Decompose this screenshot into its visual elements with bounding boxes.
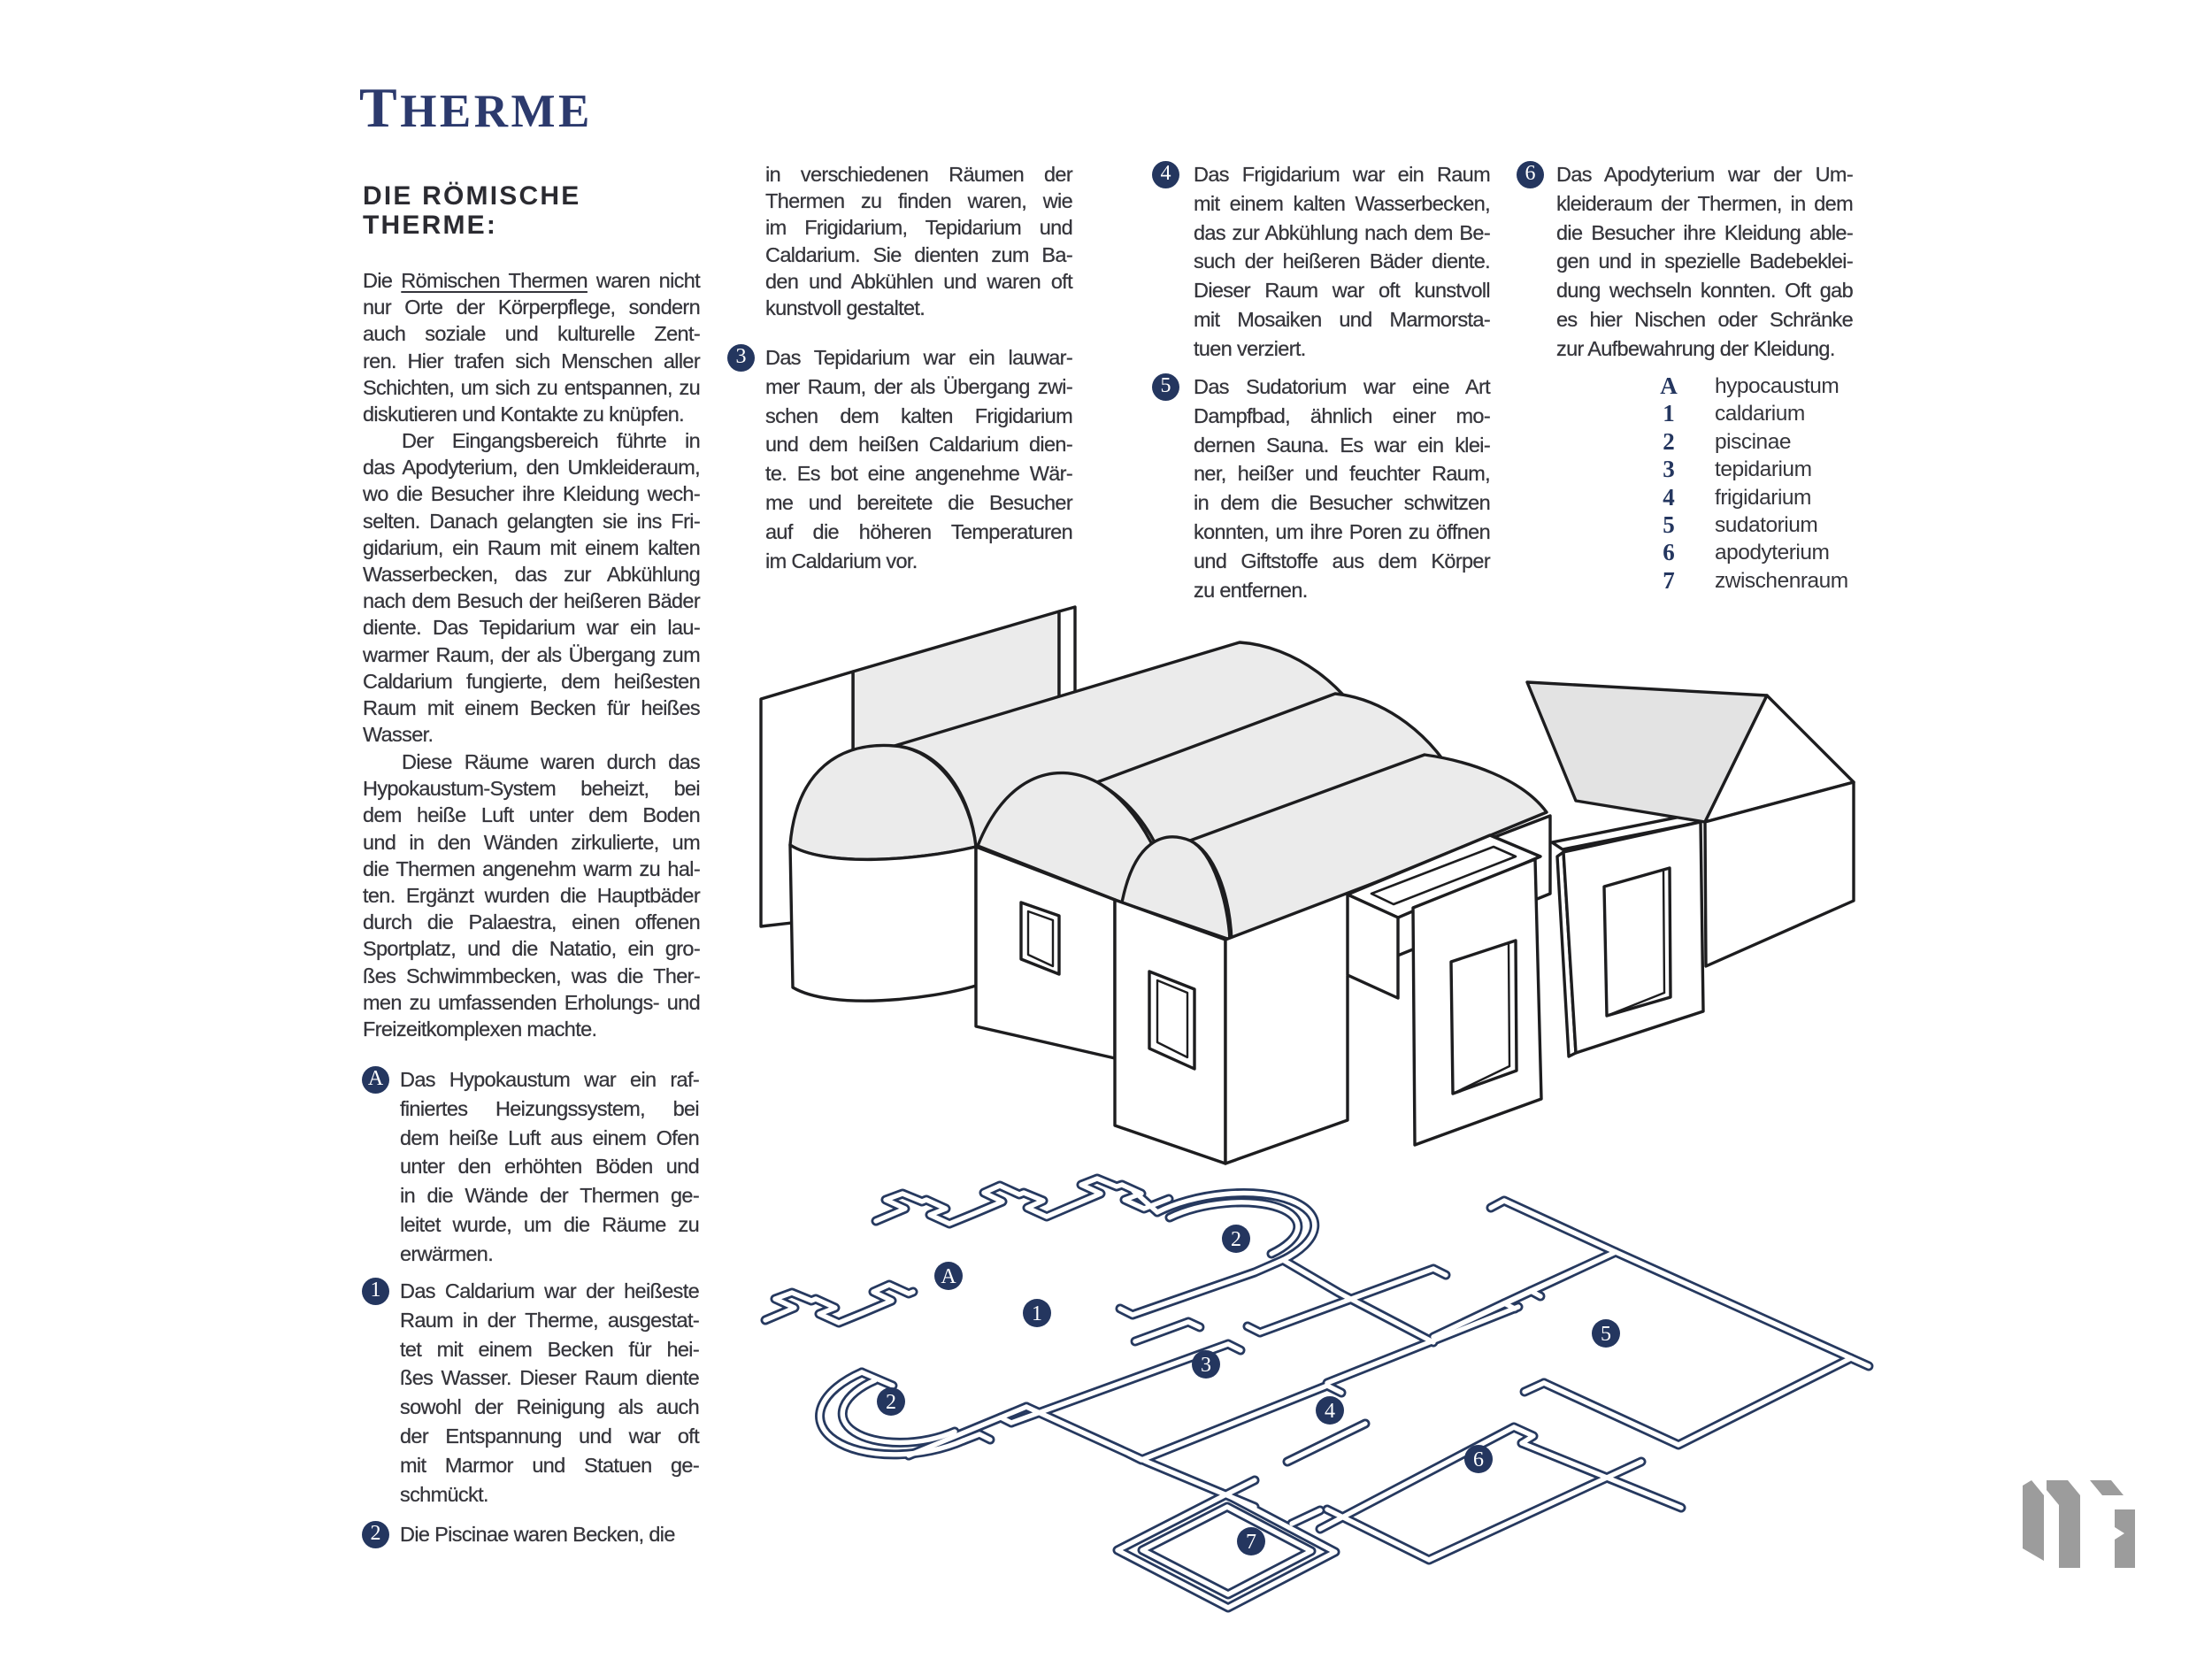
svg-text:4: 4 <box>1325 1400 1335 1423</box>
svg-text:7: 7 <box>1246 1531 1256 1554</box>
svg-text:2: 2 <box>886 1391 896 1414</box>
svg-text:5: 5 <box>1601 1323 1611 1346</box>
svg-text:6: 6 <box>1473 1448 1484 1471</box>
svg-text:A: A <box>941 1265 956 1288</box>
svg-text:3: 3 <box>1201 1354 1211 1377</box>
svg-text:2: 2 <box>1231 1228 1241 1251</box>
svg-text:1: 1 <box>1032 1302 1042 1325</box>
